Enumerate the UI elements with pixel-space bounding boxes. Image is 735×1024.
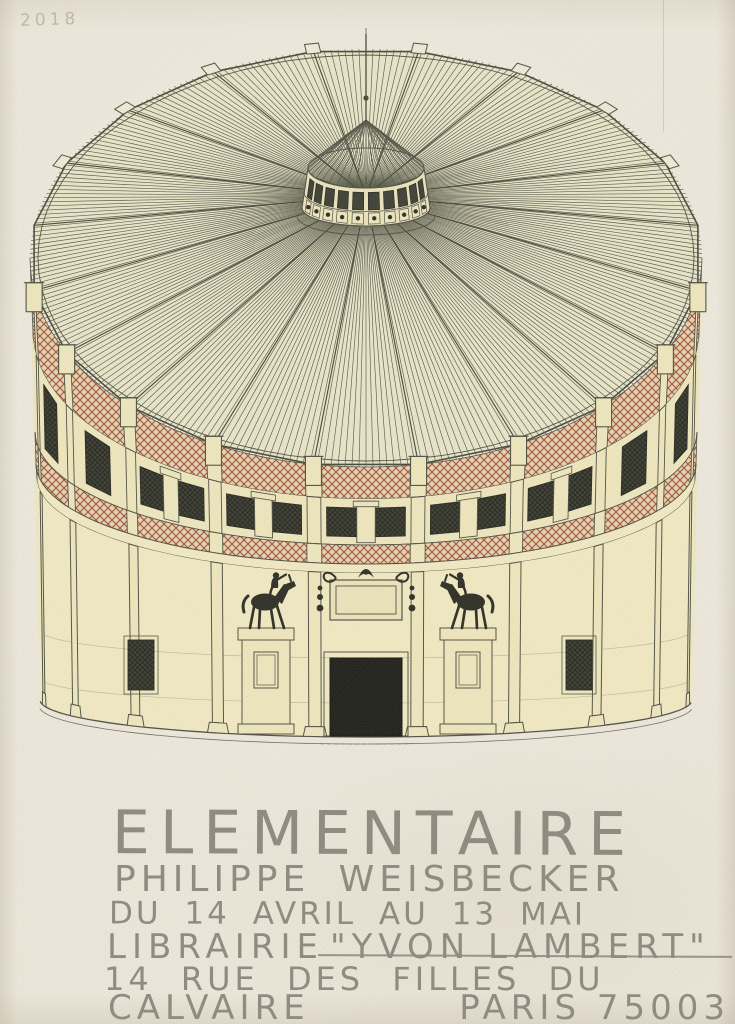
balustrade-dot xyxy=(314,209,318,213)
drop-ornament xyxy=(318,586,323,591)
balustrade-dot xyxy=(388,215,392,219)
pier-cap xyxy=(596,398,612,427)
rim-parapet-tab xyxy=(305,43,321,54)
window xyxy=(272,502,302,535)
statue-pedestal-left xyxy=(238,628,294,734)
drop-ornament xyxy=(317,594,323,600)
pier-cap xyxy=(657,345,673,374)
lantern-window xyxy=(337,190,348,209)
address-city: CALVAIRE xyxy=(108,988,310,1024)
window xyxy=(227,494,255,530)
balustrade-dot xyxy=(356,216,360,220)
rotunda-illustration xyxy=(0,0,735,790)
poster: 2018 ELEMENTAIRE PHILIPPE WEISBECKER DU … xyxy=(0,0,735,1024)
lantern-window xyxy=(383,190,394,209)
balustrade-dot xyxy=(372,216,376,220)
lantern-window xyxy=(352,192,363,210)
window xyxy=(477,494,505,530)
address-postal: PARIS 75003 xyxy=(459,988,730,1024)
pier-cap xyxy=(59,345,75,374)
balustrade-dot xyxy=(340,215,344,219)
pier-cap xyxy=(120,398,136,427)
lantern-window xyxy=(397,187,408,207)
address-line-2: CALVAIRE PARIS 75003 xyxy=(108,988,730,1024)
balustrade-dot xyxy=(422,205,426,209)
drop-ornament xyxy=(317,605,324,612)
lower-wall-window xyxy=(566,640,592,690)
pier-cap xyxy=(205,436,221,465)
pier-cap xyxy=(305,456,321,485)
drop-ornament xyxy=(410,586,415,591)
year-mark: 2018 xyxy=(20,9,80,31)
balustrade-dot xyxy=(306,205,310,209)
balustrade-dot xyxy=(413,209,417,213)
lantern-window xyxy=(368,192,379,210)
paper-crease xyxy=(663,0,664,132)
drop-ornament xyxy=(409,594,415,600)
artist-name: PHILIPPE WEISBECKER xyxy=(114,859,624,900)
window xyxy=(327,507,357,537)
window xyxy=(375,507,405,537)
drop-ornament xyxy=(409,605,416,612)
lower-wall-window xyxy=(128,640,154,690)
pier-cap xyxy=(690,283,706,312)
entrance-door xyxy=(330,658,402,736)
balustrade-dot xyxy=(326,213,330,217)
mast-finial xyxy=(363,95,368,100)
pilaster xyxy=(509,562,522,723)
pier-cap xyxy=(511,436,527,465)
lantern-window xyxy=(324,187,335,207)
statue-pedestal-right xyxy=(440,628,496,734)
pilaster xyxy=(211,562,224,723)
pilaster xyxy=(592,544,603,716)
pier-cap xyxy=(26,283,42,312)
balustrade-dot xyxy=(402,213,406,217)
window xyxy=(430,502,460,535)
pier-cap xyxy=(411,456,427,485)
rim-parapet-tab xyxy=(411,43,427,54)
